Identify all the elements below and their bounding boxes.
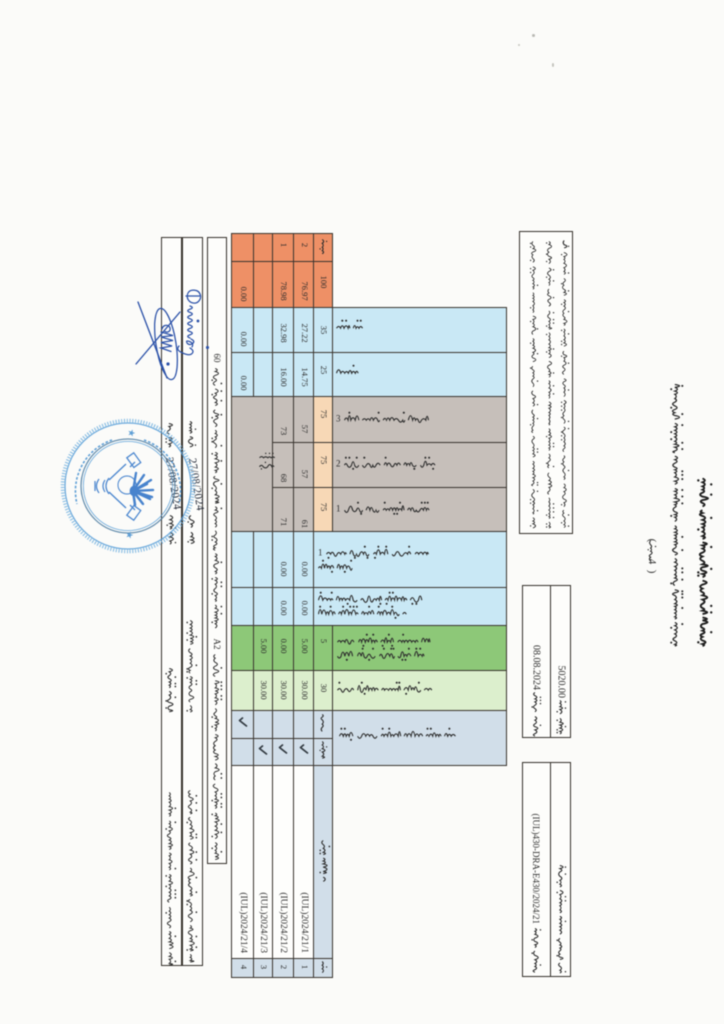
- svg-text:1: 1: [336, 503, 341, 513]
- svg-text:2: 2: [336, 458, 341, 468]
- svg-text:3: 3: [336, 413, 341, 423]
- svg-text:1: 1: [318, 547, 323, 557]
